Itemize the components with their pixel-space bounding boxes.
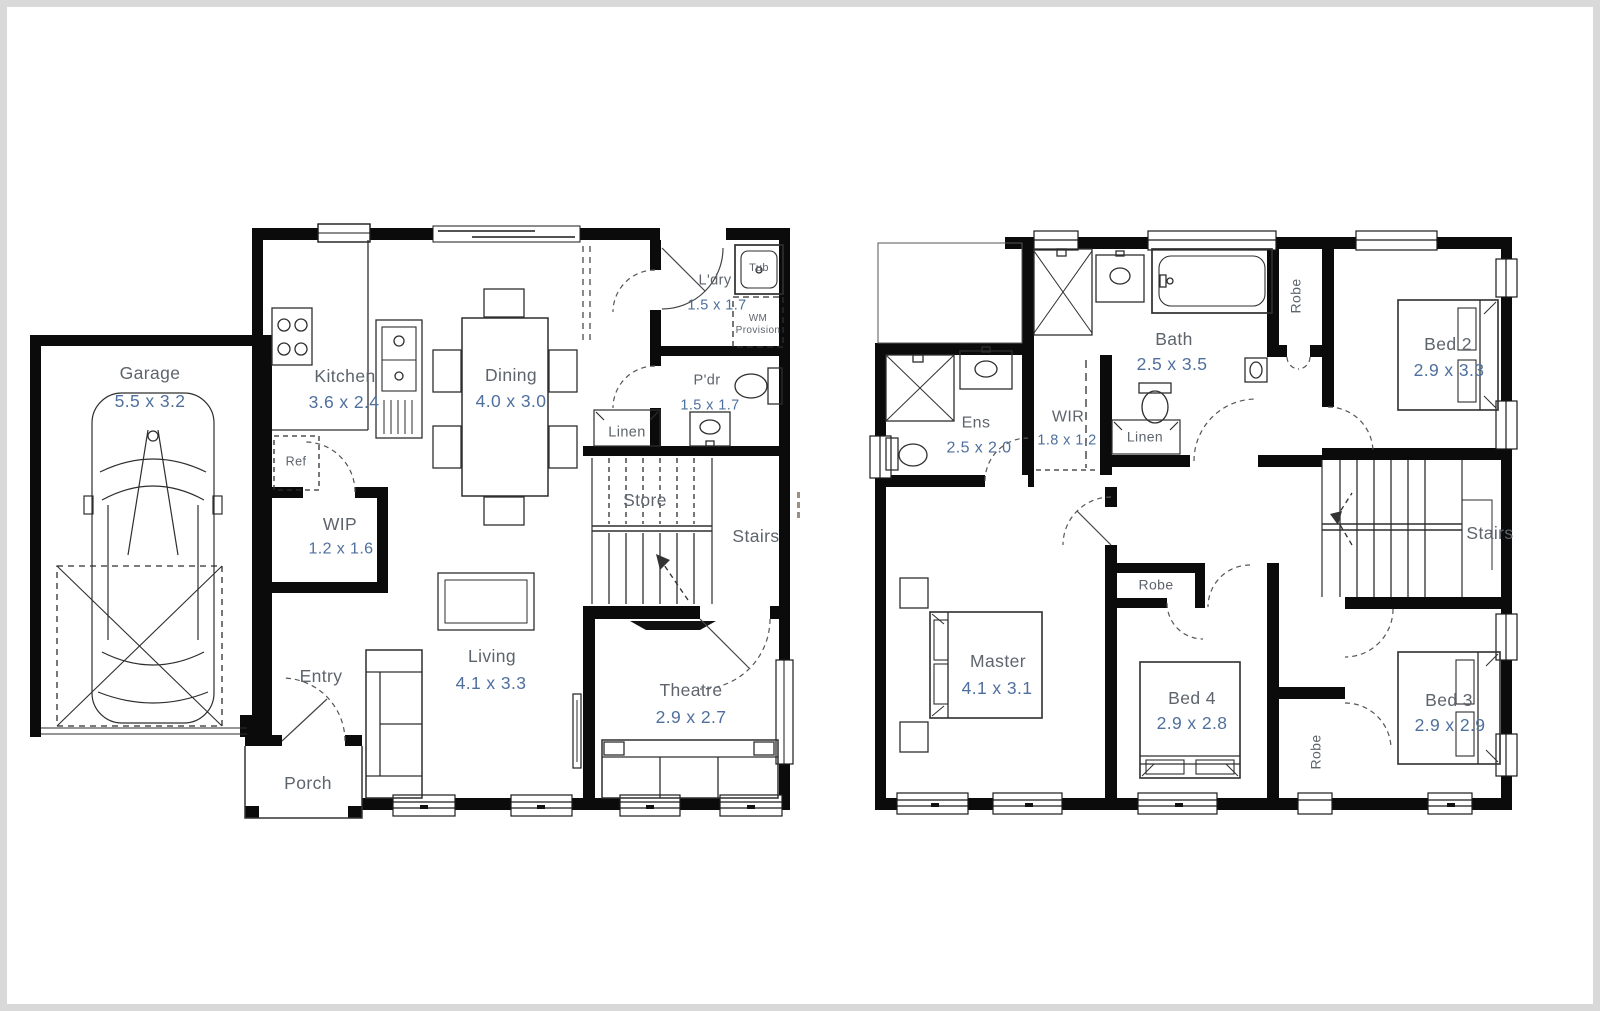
sink-icon bbox=[376, 320, 422, 438]
door-swing-icon bbox=[1298, 357, 1310, 369]
room-dims-master: 4.1 x 3.1 bbox=[962, 679, 1033, 697]
room-label-stairs-first: Stairs bbox=[1466, 524, 1513, 542]
toilet-icon bbox=[735, 368, 782, 404]
room-label-ensuite: Ens bbox=[962, 416, 991, 433]
room-label-laundry: L'dry bbox=[699, 273, 732, 288]
room-dims-kitchen: 3.6 x 2.4 bbox=[309, 393, 380, 411]
basin-icon bbox=[1096, 251, 1144, 302]
stove-icon bbox=[272, 308, 312, 365]
door-swing-icon bbox=[305, 442, 355, 492]
door-swing-icon bbox=[1328, 407, 1373, 452]
room-label-linen-first: Linen bbox=[1127, 430, 1163, 445]
door-leaf bbox=[700, 619, 749, 668]
sliding-door-icon bbox=[433, 226, 580, 242]
toilet-icon bbox=[1139, 383, 1171, 423]
room-dims-living: 4.1 x 3.3 bbox=[456, 674, 527, 692]
roof-setback-outline bbox=[878, 243, 1022, 343]
floorplan-drawing bbox=[0, 0, 1600, 1011]
door-swing-icon bbox=[1345, 703, 1391, 749]
door-swing-icon bbox=[1167, 603, 1203, 639]
room-label-wir: WIR bbox=[1052, 410, 1084, 427]
room-label-robe-bottom: Robe bbox=[1309, 734, 1324, 769]
room-label-bed3: Bed 3 bbox=[1425, 691, 1473, 709]
room-label-kitchen: Kitchen bbox=[314, 367, 375, 385]
room-dims-theatre: 2.9 x 2.7 bbox=[656, 708, 727, 726]
floorplan-canvas: Garage 5.5 x 3.2 Kitchen 3.6 x 2.4 Dinin… bbox=[0, 0, 1600, 1011]
shower-icon bbox=[1034, 249, 1092, 335]
room-label-store: Store bbox=[623, 491, 667, 509]
room-label-bath: Bath bbox=[1155, 330, 1193, 348]
door-swing-icon bbox=[1345, 609, 1393, 657]
theatre-sofa-icon bbox=[602, 740, 778, 798]
bed-icon bbox=[1398, 300, 1498, 410]
basin-icon bbox=[1245, 358, 1267, 382]
room-label-garage: Garage bbox=[120, 364, 181, 382]
door-swing-icon bbox=[613, 366, 655, 408]
room-label-porch: Porch bbox=[284, 774, 332, 792]
label-wm: WM bbox=[749, 314, 768, 325]
stairs-icon bbox=[592, 458, 712, 604]
room-label-theatre: Theatre bbox=[659, 681, 722, 699]
room-label-master: Master bbox=[970, 652, 1026, 670]
room-label-robe-top: Robe bbox=[1289, 278, 1304, 313]
window-icon bbox=[318, 224, 370, 242]
door-swing-icon bbox=[1287, 357, 1299, 369]
room-label-bed4: Bed 4 bbox=[1168, 689, 1216, 707]
garage-door-line bbox=[41, 728, 247, 734]
door-swing-icon bbox=[1208, 565, 1250, 607]
label-fridge: Ref bbox=[286, 455, 307, 468]
ground-fixtures bbox=[41, 240, 800, 818]
room-label-stairs-ground: Stairs bbox=[732, 527, 779, 545]
notation-marks bbox=[797, 492, 800, 518]
bathtub-icon bbox=[1152, 249, 1272, 313]
label-wm-provision: Provision bbox=[736, 326, 781, 337]
room-label-entry: Entry bbox=[300, 667, 343, 685]
sofa-icon bbox=[366, 650, 422, 798]
room-label-robe-mid: Robe bbox=[1138, 578, 1173, 593]
room-dims-bed4: 2.9 x 2.8 bbox=[1157, 714, 1228, 732]
toilet-icon bbox=[886, 438, 927, 470]
tv-icon bbox=[573, 694, 581, 768]
door-swing-icon bbox=[1194, 399, 1256, 461]
room-label-wip: WIP bbox=[323, 515, 357, 533]
coffee-table-icon bbox=[438, 573, 534, 630]
door-leaf bbox=[1077, 511, 1111, 545]
room-label-dining: Dining bbox=[485, 366, 537, 384]
bulkhead-line bbox=[583, 246, 590, 340]
door-leaf bbox=[282, 699, 327, 741]
room-dims-bed2: 2.9 x 3.3 bbox=[1414, 361, 1485, 379]
basin-icon bbox=[690, 412, 730, 446]
room-dims-garage: 5.5 x 3.2 bbox=[115, 392, 186, 410]
room-dims-powder: 1.5 x 1.7 bbox=[680, 398, 739, 413]
room-dims-wip: 1.2 x 1.6 bbox=[309, 542, 374, 559]
room-dims-bed3: 2.9 x 2.9 bbox=[1415, 716, 1486, 734]
room-label-living: Living bbox=[468, 647, 516, 665]
room-label-bed2: Bed 2 bbox=[1424, 335, 1472, 353]
car-icon bbox=[84, 393, 222, 723]
ground-floor bbox=[30, 224, 800, 818]
room-label-powder: P'dr bbox=[694, 373, 721, 388]
room-dims-wir: 1.8 x 1.2 bbox=[1037, 433, 1096, 448]
room-dims-ensuite: 2.5 x 2.0 bbox=[947, 441, 1012, 458]
label-tub: Tub bbox=[749, 263, 769, 275]
room-label-linen-ground: Linen bbox=[608, 425, 645, 440]
room-dims-dining: 4.0 x 3.0 bbox=[476, 392, 547, 410]
room-dims-laundry: 1.5 x 1.7 bbox=[687, 298, 746, 313]
shower-icon bbox=[886, 355, 954, 421]
ground-exterior-walls bbox=[30, 228, 790, 818]
door-swing-icon bbox=[613, 270, 655, 312]
room-dims-bath: 2.5 x 3.5 bbox=[1137, 355, 1208, 373]
